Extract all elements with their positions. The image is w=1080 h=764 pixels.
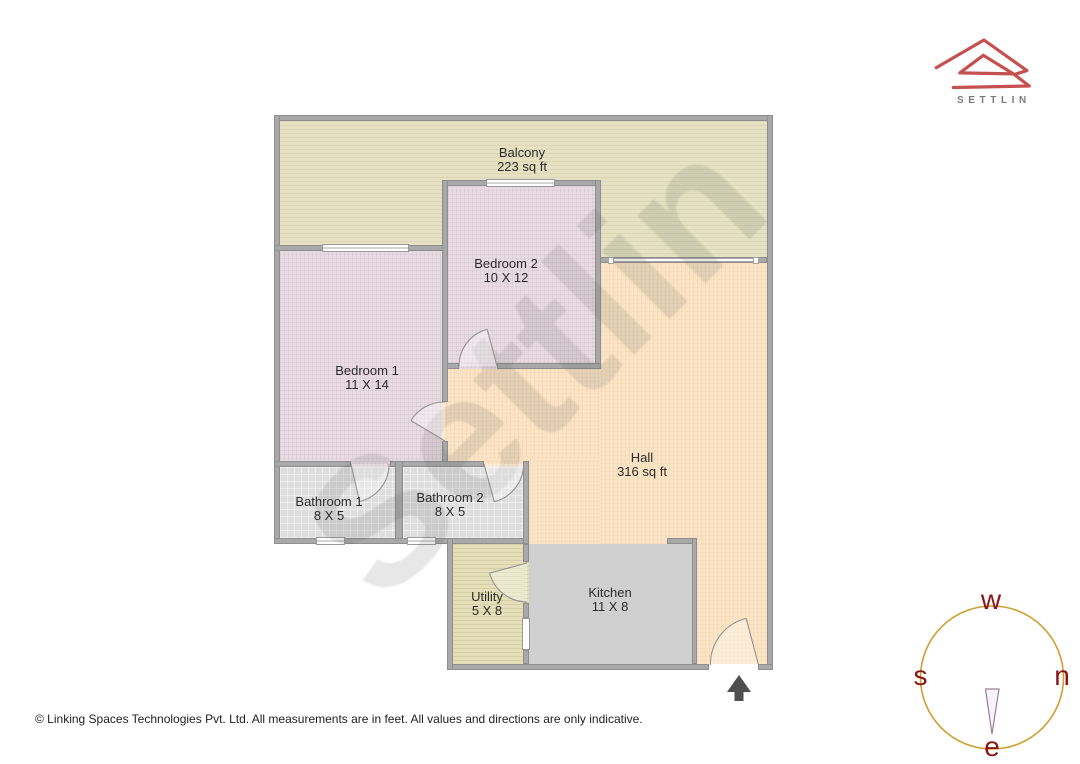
- svg-text:n: n: [1054, 660, 1070, 691]
- svg-text:s: s: [914, 660, 928, 691]
- svg-text:w: w: [980, 584, 1002, 615]
- svg-text:e: e: [984, 731, 1000, 762]
